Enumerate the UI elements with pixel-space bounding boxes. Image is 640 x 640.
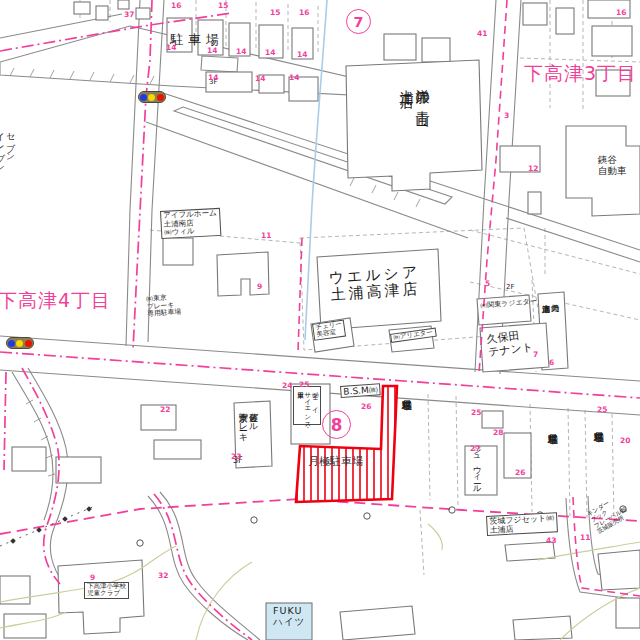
parcel-number: 14 [297, 51, 307, 59]
map-label: ㈲関東ラジエター [480, 298, 537, 311]
map-label: キンダー ブック フレーベル館 茨城販売所 [586, 494, 631, 536]
map-label: 銕谷 自動車 [598, 155, 627, 177]
map-label: B.S.M㈱ [340, 383, 381, 398]
map-root[interactable]: 駐車場洋服の青山 土浦店下高津3丁目下高津4丁目セブン イレブンアイフルホーム … [0, 0, 640, 640]
parcel-number: 14 [166, 44, 176, 52]
parcel-number: 14 [208, 74, 218, 82]
parcel-number: 41 [477, 30, 487, 38]
map-label: 茨城フジセット㈱ 土浦店 [486, 512, 558, 536]
parcel-number: 14 [255, 75, 265, 83]
parcel-number: 43 [546, 537, 556, 545]
parcel-number: 11 [580, 534, 590, 542]
map-label: 洋服の青山 土浦店 [398, 78, 430, 104]
parcel-number: 16 [616, 9, 626, 17]
parcel-number: 14 [289, 74, 299, 82]
parcel-number: 5 [485, 280, 490, 288]
parcel-number: 22 [160, 406, 170, 414]
parcel-number: 20 [620, 437, 630, 445]
parcel-number: 26 [361, 403, 371, 411]
map-label: チェリー 美容室 [312, 319, 346, 340]
map-label: ㈱東京 ブレーキ 専用駐車場 [146, 294, 182, 320]
parcel-number: 6 [549, 359, 554, 367]
parcel-number: 3 [504, 112, 509, 120]
parcel-number: 24 [282, 382, 292, 390]
parcel-number: 15 [218, 2, 228, 10]
block-number-8: 8 [322, 410, 351, 439]
parcel-number: 14 [207, 47, 217, 55]
parcel-number: 9 [257, 283, 262, 291]
parcel-number: 27 [470, 445, 480, 453]
map-label: アイフルホーム 土浦南店 ㈱ウィル [160, 208, 221, 239]
parcel-number: 15 [270, 9, 280, 17]
parcel-number: 23 [231, 453, 241, 461]
parcel-number: 12 [528, 165, 538, 173]
parcel-number: 25 [471, 409, 481, 417]
parcel-number: 9 [90, 574, 95, 582]
parcel-number: 37 [124, 11, 134, 19]
parcel-number: 7 [533, 351, 538, 359]
parcel-number: 11 [261, 232, 271, 240]
map-label: 下高津小学校 児童クラブ [84, 582, 129, 599]
traffic-light-icon [6, 337, 34, 349]
label-overlay: 駐車場洋服の青山 土浦店下高津3丁目下高津4丁目セブン イレブンアイフルホーム … [0, 0, 640, 640]
traffic-light-icon [138, 91, 166, 103]
map-label: 月極駐車場 [308, 456, 363, 469]
map-label: ウエルシア 土浦高津店 [328, 264, 422, 305]
parcel-number: 28 [493, 429, 503, 437]
map-label: ㈱ジェイ サイエンス・ 東日本 [293, 386, 321, 425]
parcel-number: 16 [171, 2, 181, 10]
map-label: セブン イレブン [0, 126, 16, 167]
parcel-number: 32 [158, 572, 168, 580]
parcel-number: 16 [299, 9, 309, 17]
map-label: 久保田 テナント [486, 329, 534, 359]
map-label: ㈱アリエター [390, 328, 436, 344]
parcel-number: 14 [236, 48, 246, 56]
map-label: 2F [506, 284, 514, 292]
parcel-number: 14 [265, 49, 275, 57]
block-number-7: 7 [346, 9, 371, 34]
parcel-number: 25 [597, 406, 607, 414]
map-label: 佐藤ビル ㈱東京ブレーキ [238, 406, 259, 437]
map-label: 下高津4丁目 [0, 290, 111, 312]
map-label: 下高津3丁目 [524, 63, 637, 85]
parcel-number: 25 [299, 381, 309, 389]
map-label: FUKU ハイツ [273, 606, 305, 628]
parcel-number: 26 [515, 469, 525, 477]
